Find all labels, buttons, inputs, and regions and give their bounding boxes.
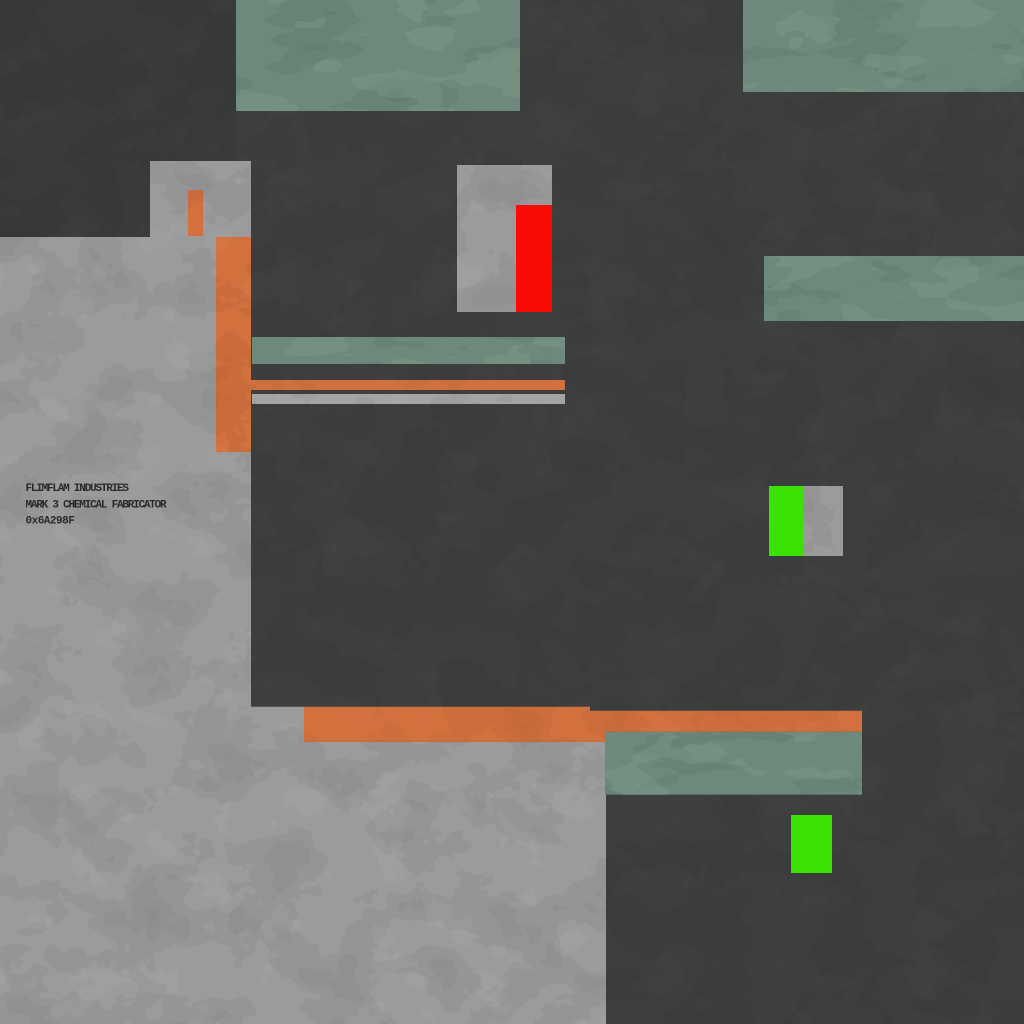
- svg-text:0x6A298F: 0x6A298F: [26, 516, 75, 528]
- svg-text:FLIMFLAM INDUSTRIES: FLIMFLAM INDUSTRIES: [26, 483, 130, 495]
- svg-text:MARK 3 CHEMICAL FABRICATOR: MARK 3 CHEMICAL FABRICATOR: [26, 500, 168, 512]
